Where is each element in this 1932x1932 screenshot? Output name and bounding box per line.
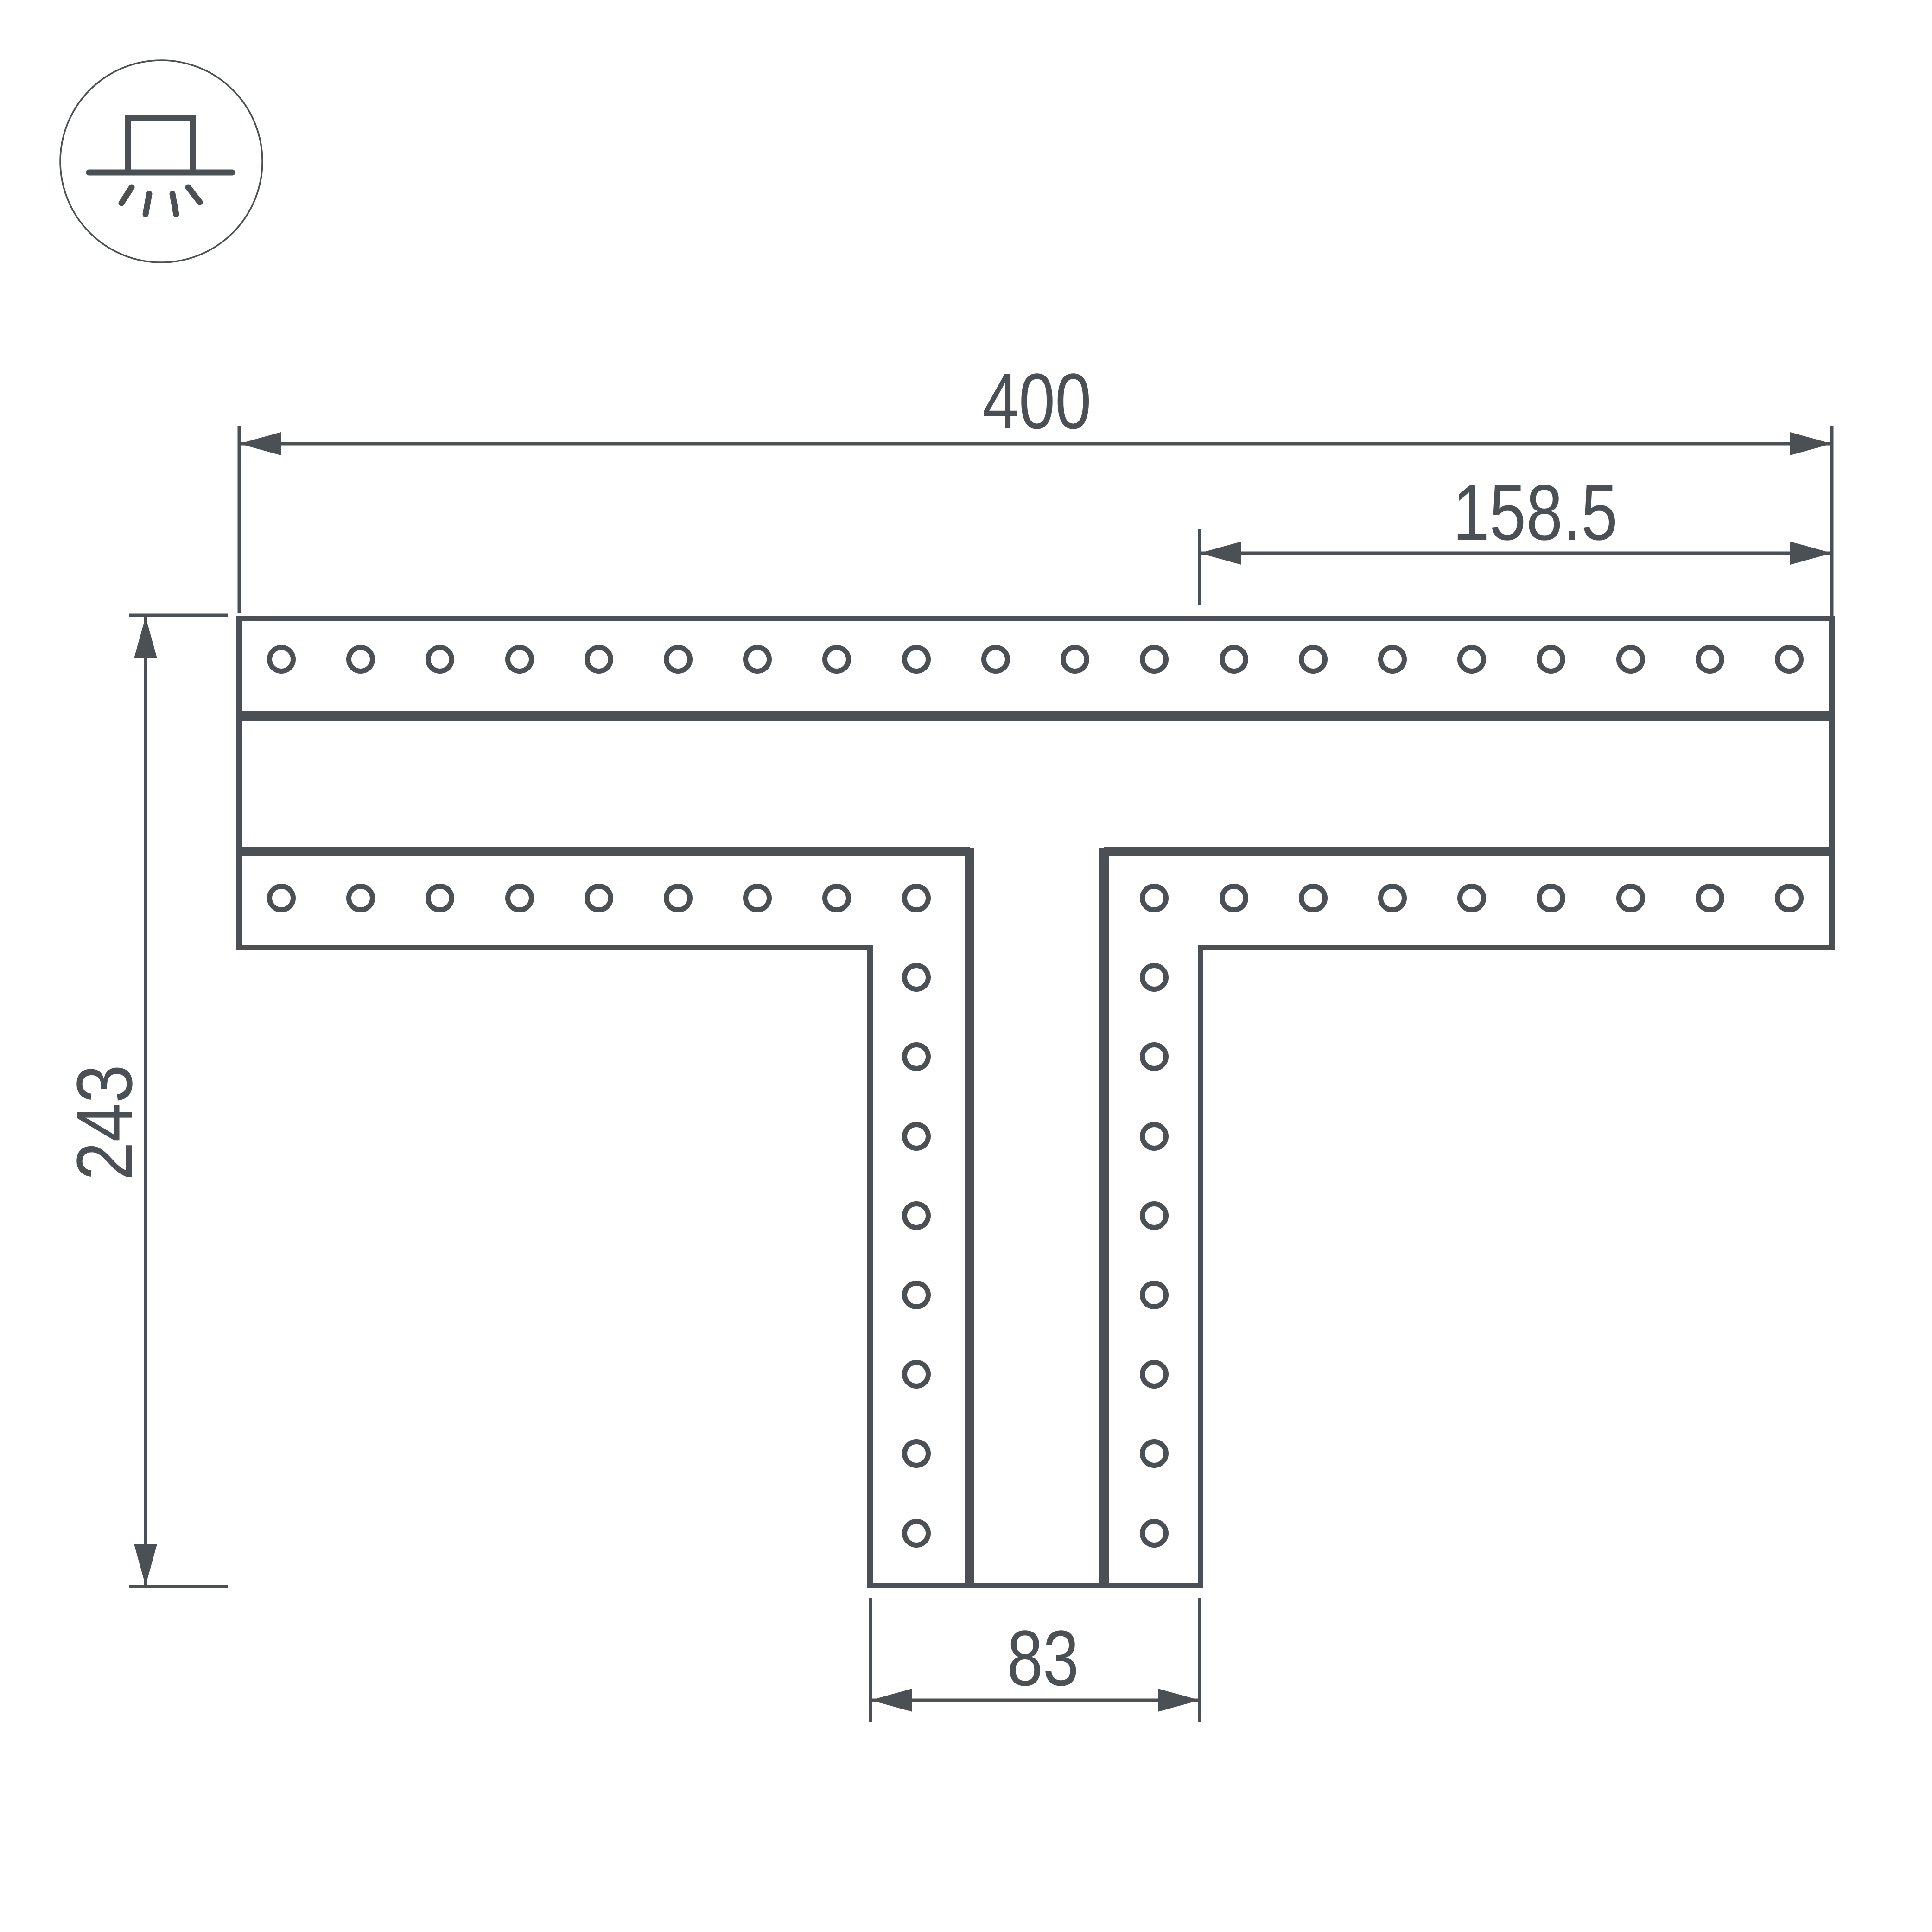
svg-text:243: 243 bbox=[61, 1065, 149, 1180]
svg-text:400: 400 bbox=[983, 357, 1092, 446]
svg-text:83: 83 bbox=[1007, 1614, 1079, 1702]
svg-text:158.5: 158.5 bbox=[1453, 469, 1618, 557]
